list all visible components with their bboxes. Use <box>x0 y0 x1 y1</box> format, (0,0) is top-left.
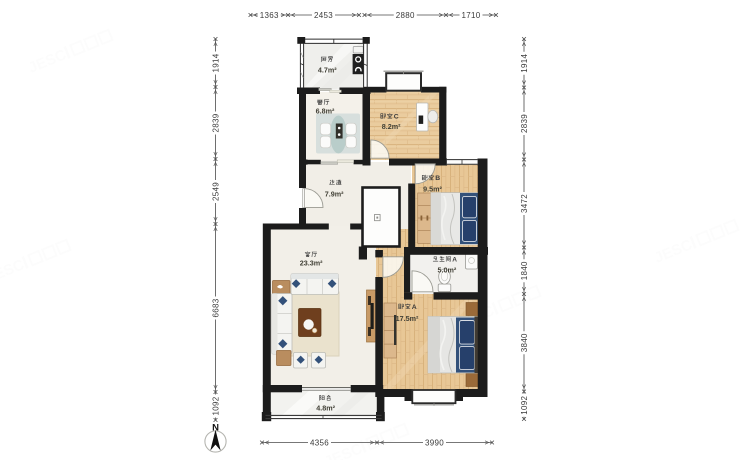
svg-text:2880: 2880 <box>396 11 415 20</box>
svg-text:1840: 1840 <box>520 261 529 280</box>
svg-text:A: A <box>452 256 457 263</box>
svg-text:2453: 2453 <box>314 11 333 20</box>
svg-text:2839: 2839 <box>520 114 529 133</box>
svg-text:4356: 4356 <box>310 439 329 448</box>
svg-text:1092: 1092 <box>520 396 529 415</box>
svg-text:5.0m²: 5.0m² <box>438 266 457 275</box>
svg-text:6.8m²: 6.8m² <box>316 106 335 115</box>
svg-text:1092: 1092 <box>212 396 221 415</box>
svg-text:A: A <box>412 304 417 311</box>
svg-text:1914: 1914 <box>520 54 529 73</box>
svg-text:17.5m²: 17.5m² <box>396 314 419 323</box>
svg-text:1914: 1914 <box>212 53 221 72</box>
svg-text:23.3m²: 23.3m² <box>300 259 323 268</box>
svg-text:6683: 6683 <box>212 298 221 317</box>
svg-text:3472: 3472 <box>520 194 529 213</box>
svg-text:3840: 3840 <box>520 333 529 352</box>
svg-text:2839: 2839 <box>212 113 221 132</box>
svg-text:3990: 3990 <box>425 439 444 448</box>
svg-text:4.7m²: 4.7m² <box>318 66 337 75</box>
svg-text:4.8m²: 4.8m² <box>316 403 335 412</box>
svg-text:7.9m²: 7.9m² <box>325 190 344 199</box>
svg-text:B: B <box>435 175 440 182</box>
svg-text:8.2m²: 8.2m² <box>382 122 401 131</box>
svg-text:9.5m²: 9.5m² <box>423 185 442 194</box>
svg-text:N: N <box>212 423 219 434</box>
svg-text:1710: 1710 <box>462 11 481 20</box>
svg-text:2549: 2549 <box>212 182 221 201</box>
svg-text:C: C <box>394 113 399 120</box>
svg-text:1363: 1363 <box>260 11 279 20</box>
